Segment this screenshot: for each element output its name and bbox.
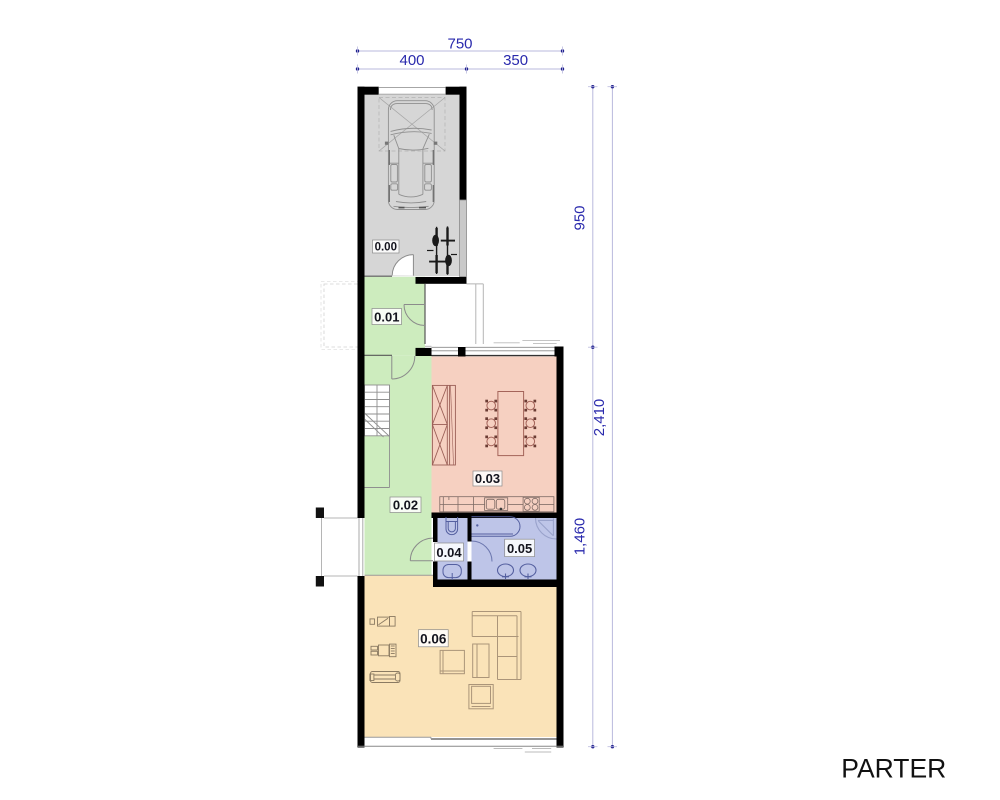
svg-text:950: 950 xyxy=(572,205,589,230)
svg-text:1,460: 1,460 xyxy=(572,518,589,556)
svg-text:0.04: 0.04 xyxy=(436,545,462,560)
svg-text:0.05: 0.05 xyxy=(507,541,532,556)
svg-text:750: 750 xyxy=(447,36,472,53)
svg-text:350: 350 xyxy=(503,52,528,69)
svg-text:2,410: 2,410 xyxy=(591,399,608,437)
svg-text:0.01: 0.01 xyxy=(374,309,399,324)
svg-text:0.02: 0.02 xyxy=(393,498,418,513)
svg-text:0.00: 0.00 xyxy=(375,242,397,254)
svg-text:0.06: 0.06 xyxy=(420,631,447,646)
svg-text:PARTER: PARTER xyxy=(841,754,946,784)
svg-text:400: 400 xyxy=(399,52,424,69)
svg-text:0.03: 0.03 xyxy=(475,471,500,486)
